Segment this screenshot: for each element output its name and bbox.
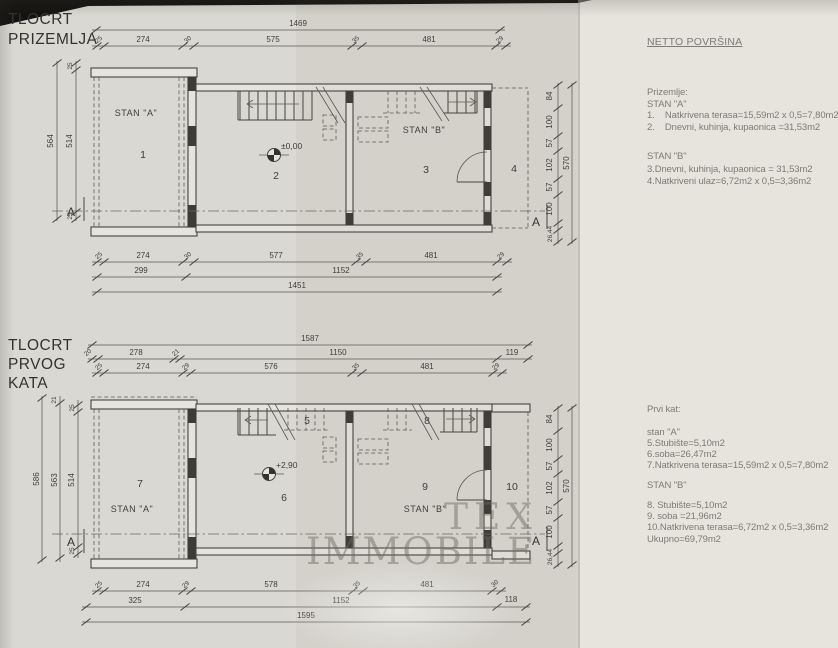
dim-label: 481 [422,35,436,44]
dim-label: 29 [495,35,505,45]
plan2-room6: 6 [281,492,287,504]
dim-label: 100 [545,438,554,452]
plan1-room4: 4 [511,163,517,175]
dim-label: 26,44 [547,548,554,565]
plan1-stairs-right [383,87,477,121]
first-item-7: 7.Natkrivena terasa=15,59m2 x 0,5=7,80m2 [647,460,828,471]
ground-item-1: 1. Natkrivena terasa=15,59m2 x 0,5=7,80m… [647,110,838,121]
dim-label: 481 [420,580,434,589]
dim-label: 25 [69,547,76,555]
dim-label: 29 [181,362,191,372]
ground-stan-b: STAN "B" [647,151,687,162]
dim-label: 514 [67,473,76,487]
dim-label: 1152 [332,596,350,605]
dim-label: 577 [269,251,283,260]
dim-label: 325 [128,596,142,605]
first-item-6: 6.soba=26,47m2 [647,449,717,460]
dim-label: 35 [351,35,361,45]
first-floor-title: Prvi kat: [647,404,680,415]
dim-label: 1469 [289,19,307,28]
dim-label: 274 [136,362,150,371]
plan2-dims-bottom: 25 274 29 578 35 481 30 325 1152 118 159… [82,579,531,626]
plan1-kitchen-furniture-dashed [323,115,388,142]
dim-label: 102 [545,481,554,495]
plan1-title-line1: TLOCRT [8,11,73,28]
dim-label: 29 [181,580,191,590]
plan1-elevation-label: ±0,00 [281,141,302,151]
plan2-dims-top: 1587 20 278 21 1150 119 25 274 29 576 35… [83,334,532,377]
first-item-8: 8. Stubište=5,10m2 [647,500,727,511]
ground-floor-title: Prizemlje: [647,87,688,98]
plan2-door [457,470,487,500]
plan1-stairs-left [238,87,345,123]
plan2-room7: 7 [137,478,143,490]
dim-label: 26,44 [547,225,554,242]
dim-label: 21 [171,348,181,358]
dim-label: 1152 [332,266,350,275]
dim-label: 25 [94,362,104,372]
dim-label: 57 [545,461,554,470]
plan1-dims-left: 564 25 514 25 [46,60,81,223]
plan1-section-letter-right: A [532,215,540,229]
plan2-elevation-label: +2,90 [276,460,298,470]
dim-label: 35 [355,251,365,261]
dim-label: 25 [67,62,74,70]
dim-label: 119 [506,348,519,357]
plan1-dims-right: 84 100 57 102 57 100 26,44 570 [545,82,577,246]
dim-label: 575 [266,35,280,44]
plan2-stan-b-label: STAN "B" [404,504,447,514]
plan2-section-letter-right: A [532,534,540,548]
plan2-stan-a-label: STAN "A" [111,504,154,514]
dim-label: 57 [545,505,554,514]
plan1-ground-floor: TLOCRT PRIZEMLJA [8,11,577,296]
plan2-title-line1: TLOCRT [8,337,73,354]
dim-label: 29 [496,251,506,261]
dim-label: 514 [65,134,74,148]
notes-heading: NETTO POVRŠINA [647,36,742,48]
dim-label: 481 [420,362,434,371]
dim-label: 118 [505,595,518,604]
plan1-stan-a-label: STAN "A" [115,108,158,118]
plan2-title-line3: KATA [8,375,48,392]
dim-label: 35 [351,362,361,372]
plan2-first-floor: TLOCRT PRVOG KATA [8,334,577,626]
plan1-terrace-dashed [94,77,184,227]
dim-label: 30 [490,579,500,589]
plan2-dims-right: 84 100 57 102 57 100 26,44 570 [545,405,577,569]
plan1-roof-overhang-dashed [492,88,528,228]
plan1-stan-b-label: STAN "B" [403,125,446,135]
dim-label: 481 [424,251,438,260]
dim-label: 274 [136,580,150,589]
plan1-room2: 2 [273,170,279,182]
dim-label: 57 [545,182,554,191]
plan2-room8: 8 [424,415,430,427]
plan1-room3: 3 [423,164,429,176]
dim-label: 25 [94,580,104,590]
plan2-furniture-dashed [323,437,388,464]
plan1-dims-bottom: 25 274 30 577 35 481 29 299 1152 1451 [92,251,512,296]
first-stan-b: STAN "B" [647,480,687,491]
first-item-5: 5.Stubište=5,10m2 [647,438,725,449]
dim-label: 25 [67,212,74,220]
dim-label: 278 [129,348,143,357]
dim-label: 274 [136,251,150,260]
plan1-room1: 1 [140,149,146,161]
dim-label: 57 [545,138,554,147]
plan2-room10: 10 [506,481,518,493]
dim-label: 84 [545,91,554,100]
plan2-room9: 9 [422,481,428,493]
dim-label: 570 [562,479,571,493]
net-area-notes: NETTO POVRŠINA Prizemlje: STAN "A" 1. Na… [647,0,838,648]
dim-label: 564 [46,134,55,148]
dim-label: 578 [264,580,278,589]
dim-label: 29 [491,362,501,372]
dim-label: 100 [545,115,554,129]
dim-label: 84 [545,414,554,423]
plan2-section-letter-left: A [67,535,75,549]
plan1-dims-top: 1469 25 274 30 575 35 481 29 [92,19,512,50]
dim-label: 1587 [301,334,319,343]
dim-label: 100 [545,202,554,216]
dim-label: 100 [545,525,554,539]
plan2-room5: 5 [304,415,310,427]
plan1-elevation-marker: ±0,00 [259,141,302,162]
dim-label: 25 [69,404,76,412]
first-item-10: 10.Natkrivena terasa=6,72m2 x 0,5=3,36m2 [647,522,828,533]
plan2-elevation-marker: +2,90 [254,460,298,481]
dim-label: 30 [183,251,193,261]
ground-item-3: 3.Dnevni, kuhinja, kupaonica = 31,53m2 [647,164,812,175]
dim-label: 576 [264,362,278,371]
plan2-walls [91,397,530,568]
ground-stan-a: STAN "A" [647,99,687,110]
dim-label: 35 [352,580,362,590]
first-stan-a: stan "A" [647,427,680,438]
plan2-title-line2: PRVOG [8,356,66,373]
dim-label: 1595 [297,611,315,620]
dim-label: 102 [545,158,554,172]
dim-label: 21 [51,396,58,404]
dim-label: 25 [94,251,104,261]
first-item-9: 9. soba =21,96m2 [647,511,722,522]
dim-label: 274 [136,35,150,44]
dim-label: 1150 [329,348,347,357]
dim-label: 563 [50,473,59,487]
dim-label: 570 [562,156,571,170]
dim-label: 1451 [288,281,306,290]
plan1-section-markers: A A [67,197,547,229]
dim-label: 20 [83,348,93,358]
dim-label: 299 [134,266,148,275]
dim-label: 30 [183,35,193,45]
first-total: Ukupno=69,79m2 [647,534,721,545]
dim-label: 586 [32,472,41,486]
ground-item-4: 4.Natkriveni ulaz=6,72m2 x 0,5=3,36m2 [647,176,811,187]
photographed-floor-plan: TLOCRT PRIZEMLJA [0,0,838,648]
ground-item-2: 2. Dnevni, kuhinja, kupaonica =31,53m2 [647,122,820,133]
plan1-entrance-door [457,152,487,182]
plan1-title-line2: PRIZEMLJA [8,31,98,48]
